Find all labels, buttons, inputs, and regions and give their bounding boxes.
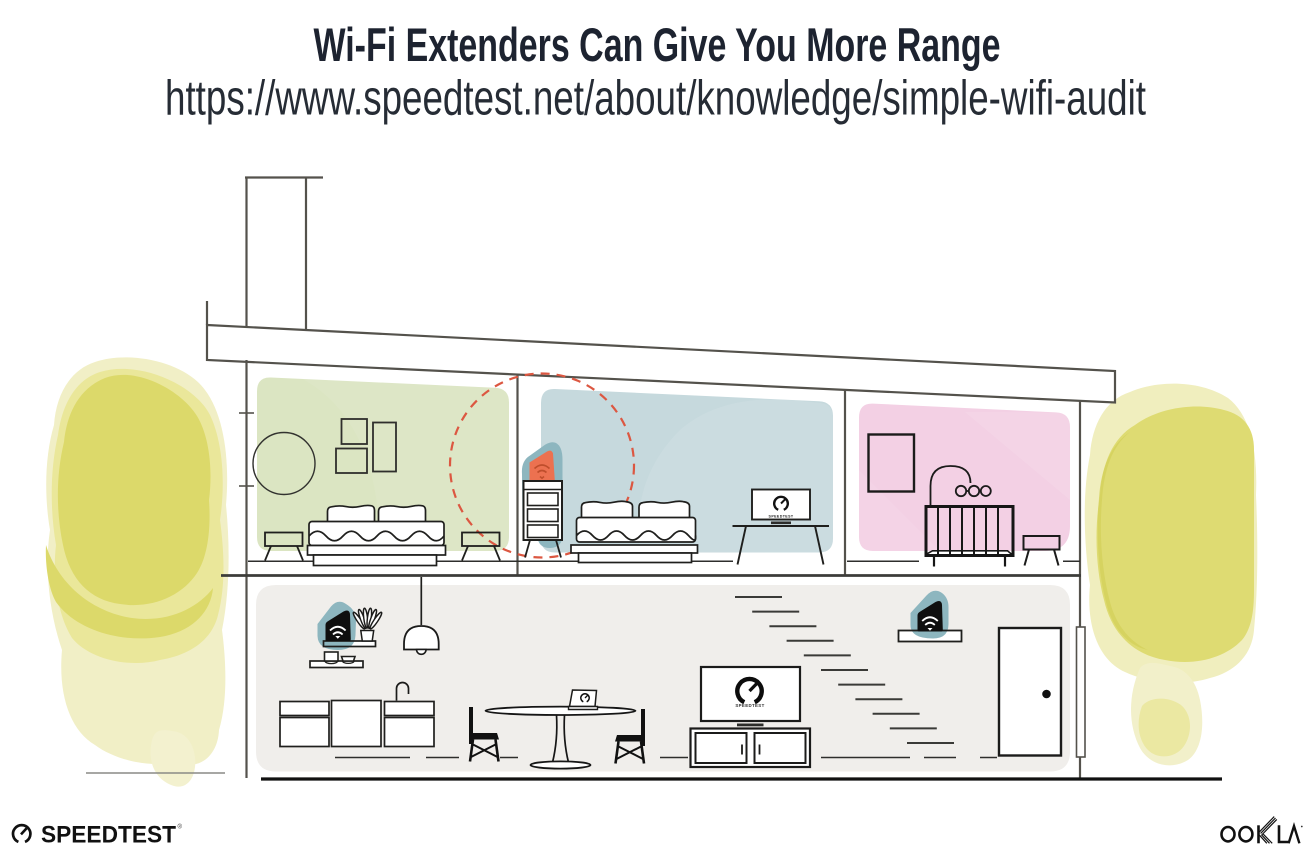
svg-text:SPEEDTEST: SPEEDTEST — [735, 703, 764, 708]
svg-text:Wi-Fi Extenders Can Give You M: Wi-Fi Extenders Can Give You More Range — [314, 18, 1001, 71]
svg-text:SPEEDTEST: SPEEDTEST — [769, 515, 794, 519]
svg-text:https://www.speedtest.net/abou: https://www.speedtest.net/about/knowledg… — [165, 72, 1146, 126]
svg-text:SPEEDTEST: SPEEDTEST — [41, 822, 176, 849]
svg-text:®: ® — [178, 824, 183, 831]
